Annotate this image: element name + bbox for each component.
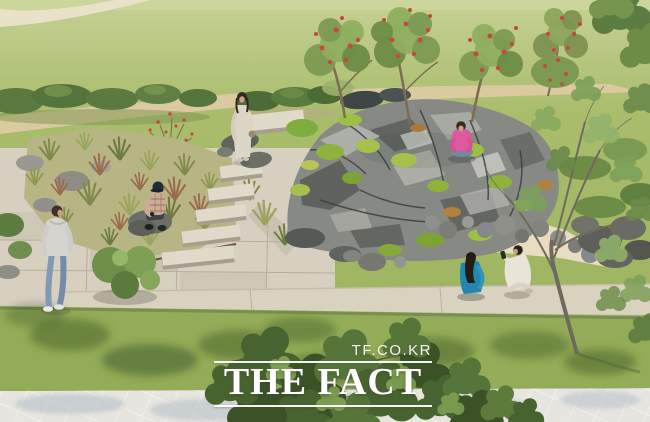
rendering-scene [0, 0, 650, 422]
rendering-image: TF.CO.KR THE FACT [0, 0, 650, 422]
center-bush [92, 246, 160, 305]
